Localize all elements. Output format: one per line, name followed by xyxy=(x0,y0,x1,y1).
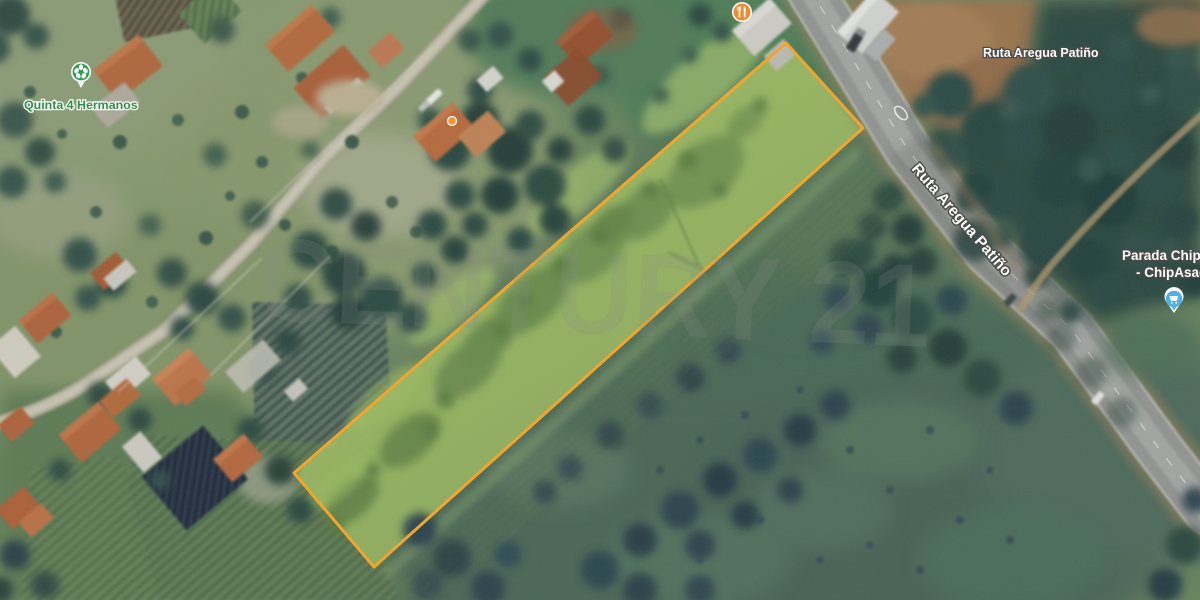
svg-text:Ruta Aregua Patiño: Ruta Aregua Patiño xyxy=(983,46,1099,60)
svg-text:Quinta 4 Hermanos: Quinta 4 Hermanos xyxy=(24,98,138,112)
svg-text:Parada Chipa: Parada Chipa xyxy=(1122,248,1200,263)
svg-text:CENTURY 21: CENTURY 21 xyxy=(254,214,934,373)
svg-text:- ChipAsad: - ChipAsad xyxy=(1136,265,1200,280)
